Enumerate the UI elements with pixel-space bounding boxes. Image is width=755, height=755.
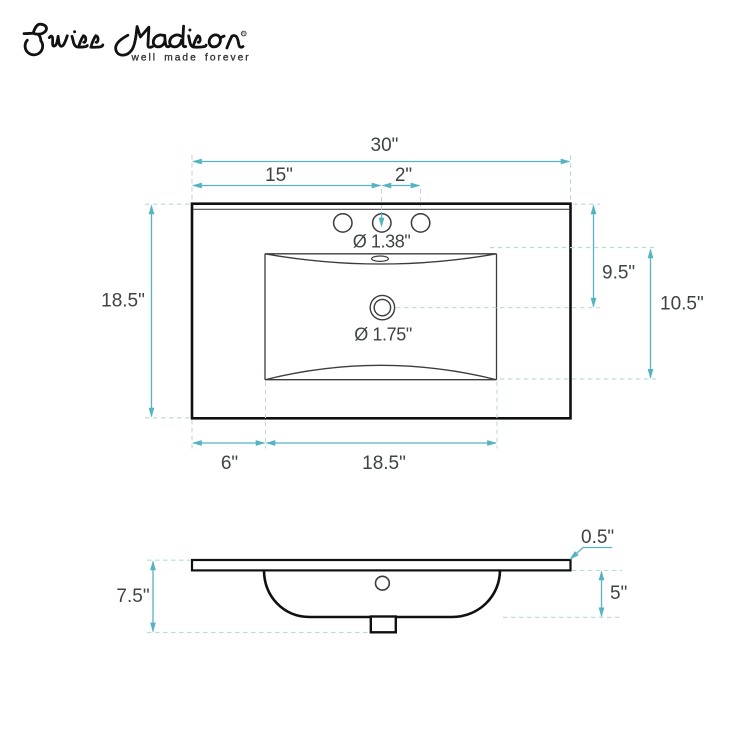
svg-text:2": 2" xyxy=(395,165,412,186)
svg-text:9.5": 9.5" xyxy=(602,263,635,284)
svg-text:15": 15" xyxy=(265,165,293,186)
svg-text:R: R xyxy=(242,31,245,36)
svg-text:18.5": 18.5" xyxy=(101,291,145,312)
svg-text:18.5": 18.5" xyxy=(362,453,406,474)
svg-text:10.5": 10.5" xyxy=(660,294,704,315)
svg-text:well made forever: well made forever xyxy=(131,53,251,64)
svg-text:6": 6" xyxy=(221,453,238,474)
svg-text:Ø 1.38": Ø 1.38" xyxy=(353,232,411,252)
svg-text:30": 30" xyxy=(371,135,399,156)
svg-text:Ø 1.75": Ø 1.75" xyxy=(354,325,412,345)
svg-text:7.5": 7.5" xyxy=(116,586,149,607)
svg-text:0.5": 0.5" xyxy=(581,527,614,548)
svg-text:5": 5" xyxy=(610,583,627,604)
